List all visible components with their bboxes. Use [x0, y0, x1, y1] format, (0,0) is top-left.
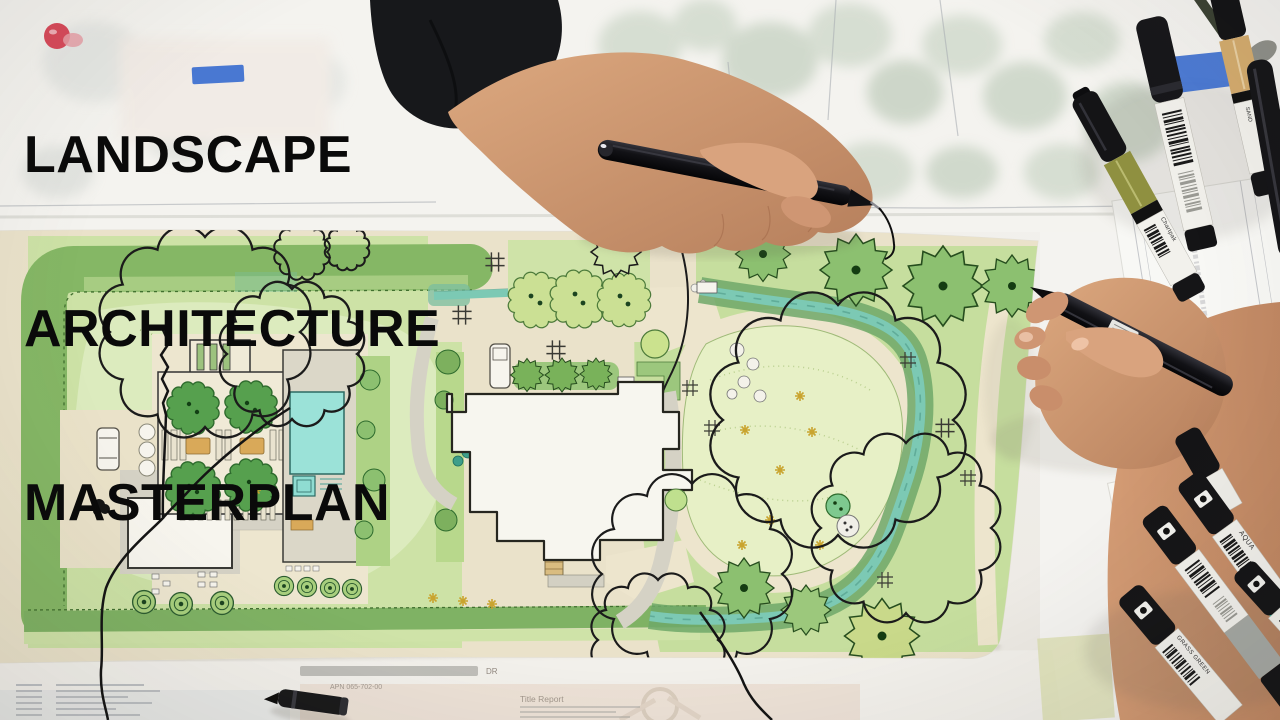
- video-title: LANDSCAPE ARCHITECTURE MASTERPLAN: [24, 10, 440, 590]
- hedge-bottom: [24, 616, 706, 622]
- apn-fragment: APN 065-702-00: [330, 684, 382, 691]
- title-line-3: MASTERPLAN: [24, 474, 440, 532]
- street-name-fragment: DR: [486, 667, 498, 676]
- title-report-fragment: Title Report: [520, 694, 564, 704]
- title-line-1: LANDSCAPE: [24, 126, 440, 184]
- fingernail: [1019, 332, 1033, 342]
- video-thumbnail-scene: N 89°17'05'01" Topographic Su ALL EASEME…: [0, 0, 1280, 720]
- title-line-2: ARCHITECTURE: [24, 300, 440, 358]
